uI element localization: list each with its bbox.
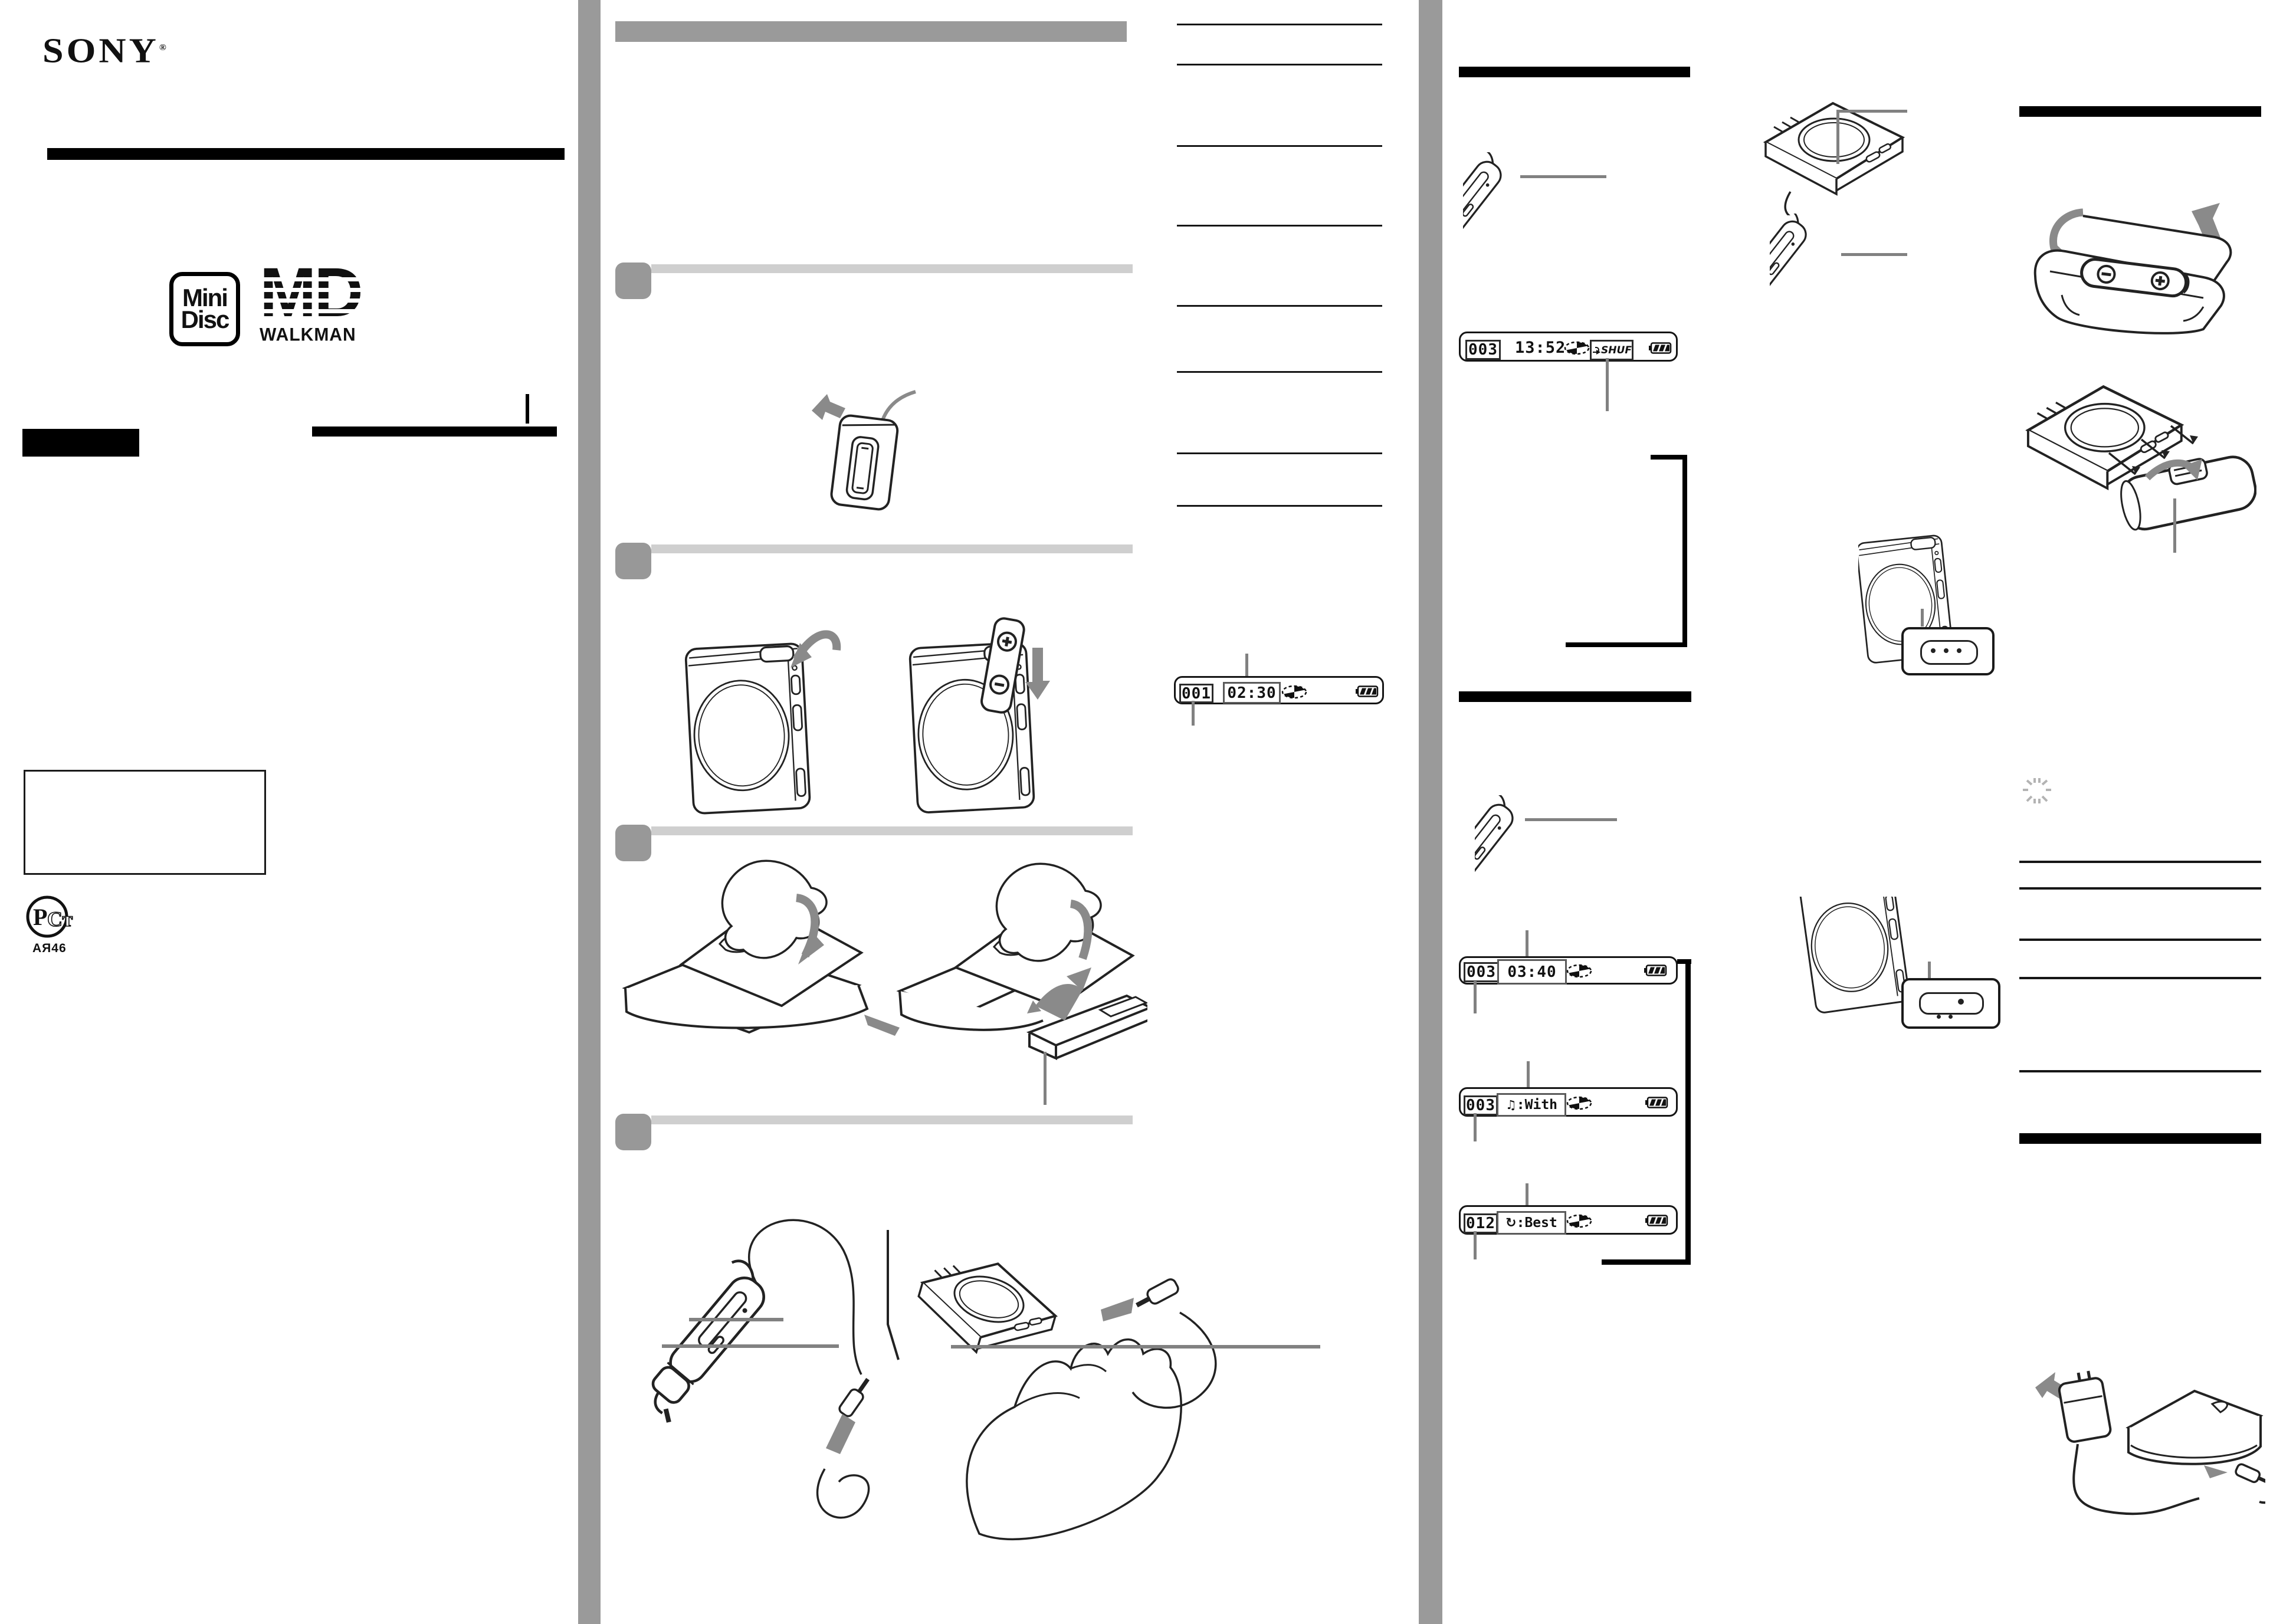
title-rule — [47, 148, 565, 160]
time-callout-line — [1245, 654, 1248, 676]
time-callout-line — [1526, 930, 1528, 956]
play-mode-box: SHUF — [1590, 340, 1633, 360]
track-number: 003 — [1466, 1097, 1495, 1114]
ruled-line — [1177, 305, 1382, 307]
bracket-bottom — [1566, 642, 1687, 647]
remote-illustration — [1463, 152, 1605, 282]
registered-mark: ® — [159, 43, 166, 53]
md-logo-stripe — [260, 277, 380, 281]
disc-icon — [1566, 964, 1593, 978]
section-heading-bar — [1459, 67, 1690, 77]
remote-illustration — [1770, 214, 1911, 337]
name-box: ♫ :With — [1497, 1093, 1566, 1117]
switch-dot — [1958, 999, 1964, 1005]
repeat-arrow-icon — [1592, 346, 1601, 355]
name-callout-line — [1527, 1061, 1530, 1087]
table-rule — [2019, 977, 2261, 979]
track-number: 003 — [1468, 341, 1498, 359]
track-callout-line — [1474, 1113, 1477, 1141]
indicator-dot — [1957, 648, 1961, 653]
indicator-dot — [1931, 648, 1936, 653]
step-1-marker — [615, 263, 651, 299]
remote-button-callout-line — [1525, 818, 1617, 821]
disc-name: :Best — [1517, 1215, 1557, 1231]
display-window-disc-name: 012 ↻ :Best — [1459, 1205, 1678, 1235]
track-callout-line — [1474, 1231, 1477, 1259]
display-callout-line — [1838, 110, 1907, 113]
insert-battery-illustration — [678, 613, 1068, 820]
connect-remote-illustration — [649, 1215, 1327, 1546]
sony-logo: SONY® — [42, 31, 166, 71]
switch-callout-line — [1928, 962, 1931, 978]
track-number-box: 001 — [1179, 684, 1213, 703]
bracket-stem — [1685, 959, 1691, 1265]
model-name-block — [22, 429, 139, 457]
step-2-rule — [651, 544, 1133, 553]
insert-disc-illustration — [611, 855, 1147, 1109]
bracket-bottom — [1602, 1259, 1691, 1265]
md-logo-stripe — [260, 288, 380, 292]
hold-switch-detail-box — [1901, 978, 2000, 1029]
gost-mark-p: Р — [33, 904, 47, 930]
table-rule — [2019, 887, 2261, 890]
dry-battery-case-illustration — [2026, 201, 2239, 342]
ruled-line — [1177, 452, 1382, 454]
name-box: ↻ :Best — [1497, 1211, 1566, 1235]
ruled-line — [1177, 24, 1382, 25]
play-mode: SHUF — [1601, 345, 1632, 356]
music-note-icon: ♫ — [1505, 1098, 1517, 1112]
mode-callout-line — [1606, 358, 1609, 411]
section-header-bar — [615, 21, 1127, 42]
step-3-rule — [651, 826, 1133, 835]
gost-certification-icon: Р Ст — [25, 894, 81, 944]
column-tick-mark — [526, 394, 529, 424]
time-box: 02:30 — [1223, 682, 1281, 704]
track-number: 001 — [1182, 685, 1211, 703]
charging-stand-illustration — [808, 383, 917, 522]
battery-indicator-detail-box — [1901, 627, 1995, 675]
flashing-icon — [2020, 777, 2054, 805]
subtitle-rule — [312, 426, 557, 437]
plug-callout-line — [662, 1344, 839, 1348]
step-4-rule — [651, 1116, 1133, 1124]
disc-icon — [1566, 1096, 1593, 1110]
table-rule — [2019, 939, 2261, 941]
step-2-marker — [615, 543, 651, 579]
battery-icon — [1355, 685, 1379, 697]
track-number-box: 012 — [1464, 1213, 1498, 1233]
latch-callout-line — [2173, 498, 2176, 553]
bracket-top — [1651, 455, 1687, 460]
remote-button-callout-line — [1841, 253, 1907, 256]
ruled-line — [1177, 371, 1382, 373]
elapsed-time: 13:52 — [1515, 339, 1566, 357]
battery-icon — [1645, 1097, 1668, 1108]
track-callout-line — [1474, 981, 1477, 1013]
remote-illustration — [1475, 795, 1616, 925]
rotate-icon: ↻ — [1505, 1216, 1516, 1231]
switch-dot — [1937, 1015, 1941, 1019]
section-heading-bar — [2019, 106, 2261, 117]
table-rule — [2019, 861, 2261, 863]
gost-mark-ct: Ст — [47, 907, 73, 931]
battery-icon — [1645, 1215, 1668, 1226]
minidisc-logo-line2: Disc — [181, 309, 229, 331]
battery-icon — [1644, 964, 1667, 976]
ac-adapter-illustration — [2029, 1357, 2265, 1546]
time-box: 03:40 — [1497, 959, 1567, 985]
md-logo-stripe — [260, 298, 380, 303]
remote-button-callout-line — [1520, 175, 1606, 178]
bracket-stem — [1682, 455, 1687, 647]
battery-indicator-pill — [1920, 640, 1978, 665]
display-window-track-name: 003 ♫ :With — [1459, 1087, 1678, 1117]
track-name: :With — [1517, 1097, 1557, 1113]
track-callout-line — [1192, 701, 1195, 726]
track-number: 003 — [1467, 963, 1496, 981]
table-rule — [2019, 1070, 2261, 1072]
md-walkman-logo: MD WALKMAN — [260, 264, 380, 353]
track-number: 012 — [1466, 1215, 1495, 1232]
ruled-line — [1177, 505, 1382, 507]
elapsed-time: 03:40 — [1507, 963, 1556, 981]
display-window-overview: 001 02:30 — [1174, 676, 1384, 704]
step-1-rule — [651, 264, 1133, 273]
ruled-line — [1177, 225, 1382, 227]
jack-callout-line — [951, 1345, 1320, 1349]
elapsed-time: 02:30 — [1227, 684, 1276, 702]
remote-callout-line — [689, 1318, 783, 1321]
md-logo-stripe — [260, 309, 380, 313]
ruled-line — [1177, 64, 1382, 65]
battery-icon — [1648, 342, 1672, 354]
minidisc-logo: Mini Disc — [169, 272, 240, 346]
indicator-callout-line — [1921, 609, 1924, 626]
walkman-logo-text: WALKMAN — [260, 324, 356, 346]
disc-icon — [1281, 685, 1308, 699]
attach-battery-pack-illustration — [2020, 383, 2256, 560]
display-callout-line — [1836, 110, 1839, 164]
disc-icon — [1563, 341, 1590, 355]
page-divider-left — [578, 0, 601, 1624]
indicator-dot — [1944, 648, 1949, 653]
section-heading-bar — [1459, 691, 1691, 702]
disc-icon — [1566, 1214, 1593, 1228]
page-divider-right — [1419, 0, 1442, 1624]
notice-box — [24, 770, 266, 875]
disc-callout-line — [1044, 1052, 1047, 1105]
switch-dot — [1949, 1015, 1953, 1019]
display-window-elapsed: 003 03:40 — [1459, 956, 1678, 985]
step-4-marker — [615, 1114, 651, 1150]
switch-pill — [1919, 992, 1984, 1015]
track-number-box: 003 — [1464, 962, 1499, 982]
track-number-box: 003 — [1464, 1095, 1498, 1116]
name-callout-line — [1526, 1183, 1528, 1205]
ruled-line — [1177, 145, 1382, 147]
section-heading-bar — [2019, 1133, 2261, 1144]
track-number-box: 003 — [1465, 340, 1501, 360]
gost-certification-code: АЯ46 — [32, 941, 67, 956]
manual-page: SONY® Mini Disc MD WALKMAN Р Ст АЯ46 — [0, 0, 2283, 1624]
display-window-shuffle: 003 13:52 SHUF — [1459, 332, 1678, 362]
